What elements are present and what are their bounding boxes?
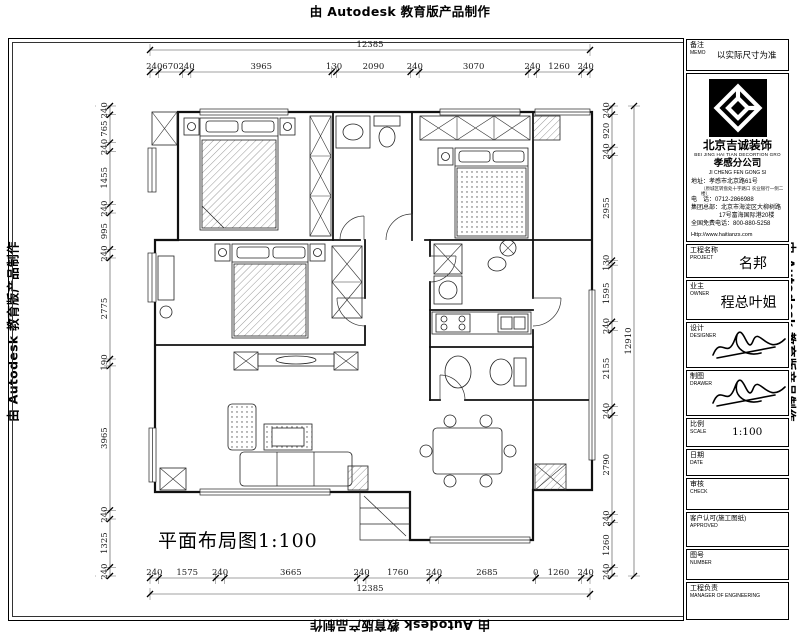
- svg-text:130: 130: [326, 62, 342, 72]
- dim-bottom-overall: 12385: [147, 584, 593, 600]
- company-address: 地址：孝感市北京路61号: [691, 178, 788, 186]
- memo-field: 备注 MEMO 以实际尺寸为准: [686, 39, 789, 71]
- bathroom-right: [430, 240, 516, 304]
- svg-text:3965: 3965: [100, 427, 110, 449]
- svg-text:2090: 2090: [363, 62, 385, 72]
- svg-text:1260: 1260: [548, 568, 570, 578]
- dim-top-overall: 12385: [147, 40, 593, 56]
- number-field: 图号 NUMBER: [686, 549, 789, 580]
- owner-field: 业主 OWNER 程总叶姐: [686, 280, 789, 320]
- check-label-cn: 审核: [687, 479, 788, 489]
- dim-left-overall: 12910: [95, 103, 96, 579]
- dim-right-chain: 2409202402955130159524021552402790240126…: [602, 102, 618, 580]
- svg-text:1595: 1595: [602, 283, 612, 305]
- memo-label-en: MEMO: [687, 50, 706, 56]
- check-field: 审核 CHECK: [686, 478, 789, 510]
- wardrobe-bedroom3: [420, 116, 530, 140]
- dim-left-chain: 2407652401455240995240277519039652401325…: [100, 102, 116, 579]
- manager-label-cn: 工程负责: [687, 583, 788, 593]
- svg-text:2155: 2155: [602, 358, 612, 380]
- scale-field: 比例 SCALE 1:100: [686, 418, 789, 447]
- number-label-en: NUMBER: [687, 560, 788, 566]
- autodesk-watermark-top: 由 Autodesk 教育版产品制作: [300, 1, 500, 20]
- company-hq2: 17号富海国际港20楼: [691, 212, 788, 220]
- check-label-en: CHECK: [687, 489, 788, 495]
- company-hotline: 全国免费电话：800-880-5258: [691, 220, 788, 228]
- svg-text:1260: 1260: [548, 62, 570, 72]
- plan-caption: 平面布局图1:100: [158, 526, 318, 553]
- coffee-table: [264, 424, 312, 450]
- drawer-signature: [709, 379, 789, 409]
- approved-label-en: APPROVED: [687, 523, 788, 529]
- date-label-en: DATE: [687, 460, 788, 466]
- svg-text:12910: 12910: [624, 327, 634, 354]
- door-bedroom1: [386, 214, 412, 240]
- dim-top-chain: 2406702403965130209024030702401260240: [146, 62, 594, 78]
- title-block: 备注 MEMO 以实际尺寸为准 北京吉诚装饰 BEI JING HAI TIAN…: [683, 38, 791, 621]
- svg-text:2955: 2955: [602, 197, 612, 219]
- svg-text:1325: 1325: [100, 532, 110, 554]
- owner-label-cn: 业主: [687, 281, 709, 291]
- duct-top-right: [533, 116, 560, 140]
- scale-label-cn: 比例: [687, 419, 706, 429]
- kitchen-sink: [498, 314, 528, 332]
- company-phone: 电 话：0712-2866988: [691, 196, 788, 204]
- manager-field: 工程负责 MANAGER OF ENGINEERING: [686, 582, 789, 620]
- dim-right-overall: 12910: [624, 103, 640, 579]
- dining-table: [420, 415, 516, 487]
- approved-field: 客户认可(施工图纸) APPROVED: [686, 512, 789, 547]
- project-field: 工程名称 PROJECT 名邦: [686, 244, 789, 278]
- company-field: 北京吉诚装饰 BEI JING HAI TIAN DECORTION GRO 孝…: [686, 73, 789, 242]
- svg-text:765: 765: [100, 121, 110, 137]
- door-master: [337, 298, 365, 326]
- balcony-door: [533, 298, 561, 326]
- svg-text:920: 920: [602, 123, 612, 139]
- svg-text:1455: 1455: [100, 167, 110, 189]
- entry-steps: [360, 492, 410, 540]
- owner-value: 程总叶姐: [709, 281, 788, 312]
- svg-text:2775: 2775: [100, 298, 110, 320]
- svg-text:2790: 2790: [602, 454, 612, 476]
- wardrobe-master: [332, 246, 362, 318]
- company-address-note: （原城区转盘处十字路口 农业银行一侧二楼）: [691, 186, 788, 196]
- svg-text:3070: 3070: [463, 62, 485, 72]
- ac-symbol: [500, 240, 516, 256]
- closet-top-left: [152, 112, 177, 145]
- project-value: 名邦: [718, 245, 788, 273]
- svg-text:1575: 1575: [176, 568, 198, 578]
- living-room: [160, 352, 368, 490]
- project-label-cn: 工程名称: [687, 245, 718, 255]
- company-hq: 集团总部：北京市海淀区大柳树路: [691, 204, 788, 212]
- stove: [436, 314, 470, 332]
- company-branch-cn: 孝感分公司: [714, 158, 762, 170]
- date-field: 日期 DATE: [686, 449, 789, 476]
- approved-label-cn: 客户认可(施工图纸): [687, 513, 788, 523]
- svg-text:1260: 1260: [602, 534, 612, 556]
- tv-cabinet: [258, 354, 334, 366]
- svg-text:2685: 2685: [476, 568, 498, 578]
- number-label-cn: 图号: [687, 550, 788, 560]
- dim-bottom-chain: 240157524036652401760240268501260240: [146, 568, 594, 584]
- bed-master: [158, 244, 325, 338]
- svg-text:995: 995: [100, 223, 110, 239]
- svg-text:3665: 3665: [280, 568, 302, 578]
- designer-field: 设计 DESIGNER: [686, 322, 789, 368]
- svg-text:670: 670: [162, 62, 178, 72]
- scale-label-en: SCALE: [687, 429, 706, 435]
- company-logo: [709, 79, 767, 137]
- svg-text:1760: 1760: [387, 568, 409, 578]
- washer-box: [535, 464, 566, 490]
- manager-label-en: MANAGER OF ENGINEERING: [687, 593, 788, 599]
- svg-text:130: 130: [602, 255, 612, 271]
- svg-text:3965: 3965: [250, 62, 272, 72]
- memo-value: 以实际尺寸为准: [706, 40, 788, 61]
- svg-text:12385: 12385: [356, 40, 383, 50]
- bed-bedroom3: [438, 148, 528, 238]
- designer-signature: [709, 331, 789, 361]
- company-website: Http://www.haitianzs.com: [691, 228, 788, 239]
- memo-label-cn: 备注: [687, 40, 706, 50]
- owner-label-en: OWNER: [687, 291, 709, 297]
- date-label-cn: 日期: [687, 450, 788, 460]
- project-label-en: PROJECT: [687, 255, 718, 261]
- company-name-cn: 北京吉诚装饰: [703, 139, 772, 152]
- scale-value: 1:100: [706, 419, 788, 438]
- bathroom-lower: [440, 356, 526, 400]
- drawer-field: 制图 DRAWER: [686, 370, 789, 416]
- wardrobe-bedroom1: [310, 116, 331, 236]
- kitchen: [432, 312, 531, 334]
- bathroom-top: [336, 116, 400, 240]
- svg-text:12385: 12385: [356, 584, 383, 594]
- bed-bedroom1: [200, 118, 278, 230]
